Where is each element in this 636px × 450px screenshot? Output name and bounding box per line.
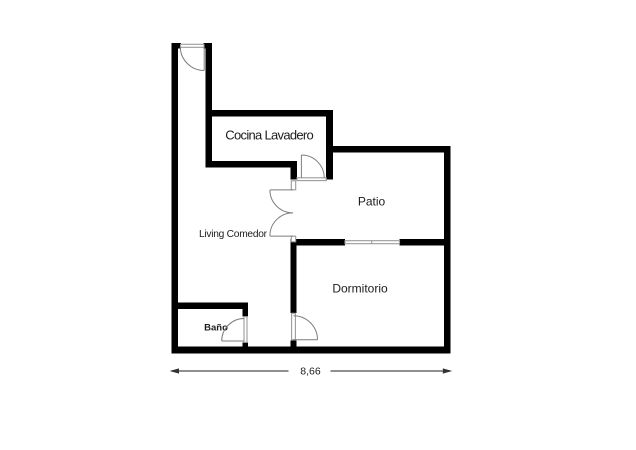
svg-text:Dormitorio: Dormitorio (332, 281, 388, 295)
svg-text:Patio: Patio (358, 195, 386, 209)
svg-text:8,66: 8,66 (300, 366, 321, 378)
svg-text:Baño: Baño (204, 323, 228, 334)
svg-text:Living Comedor: Living Comedor (199, 229, 268, 240)
svg-text:Cocina Lavadero: Cocina Lavadero (225, 128, 313, 143)
